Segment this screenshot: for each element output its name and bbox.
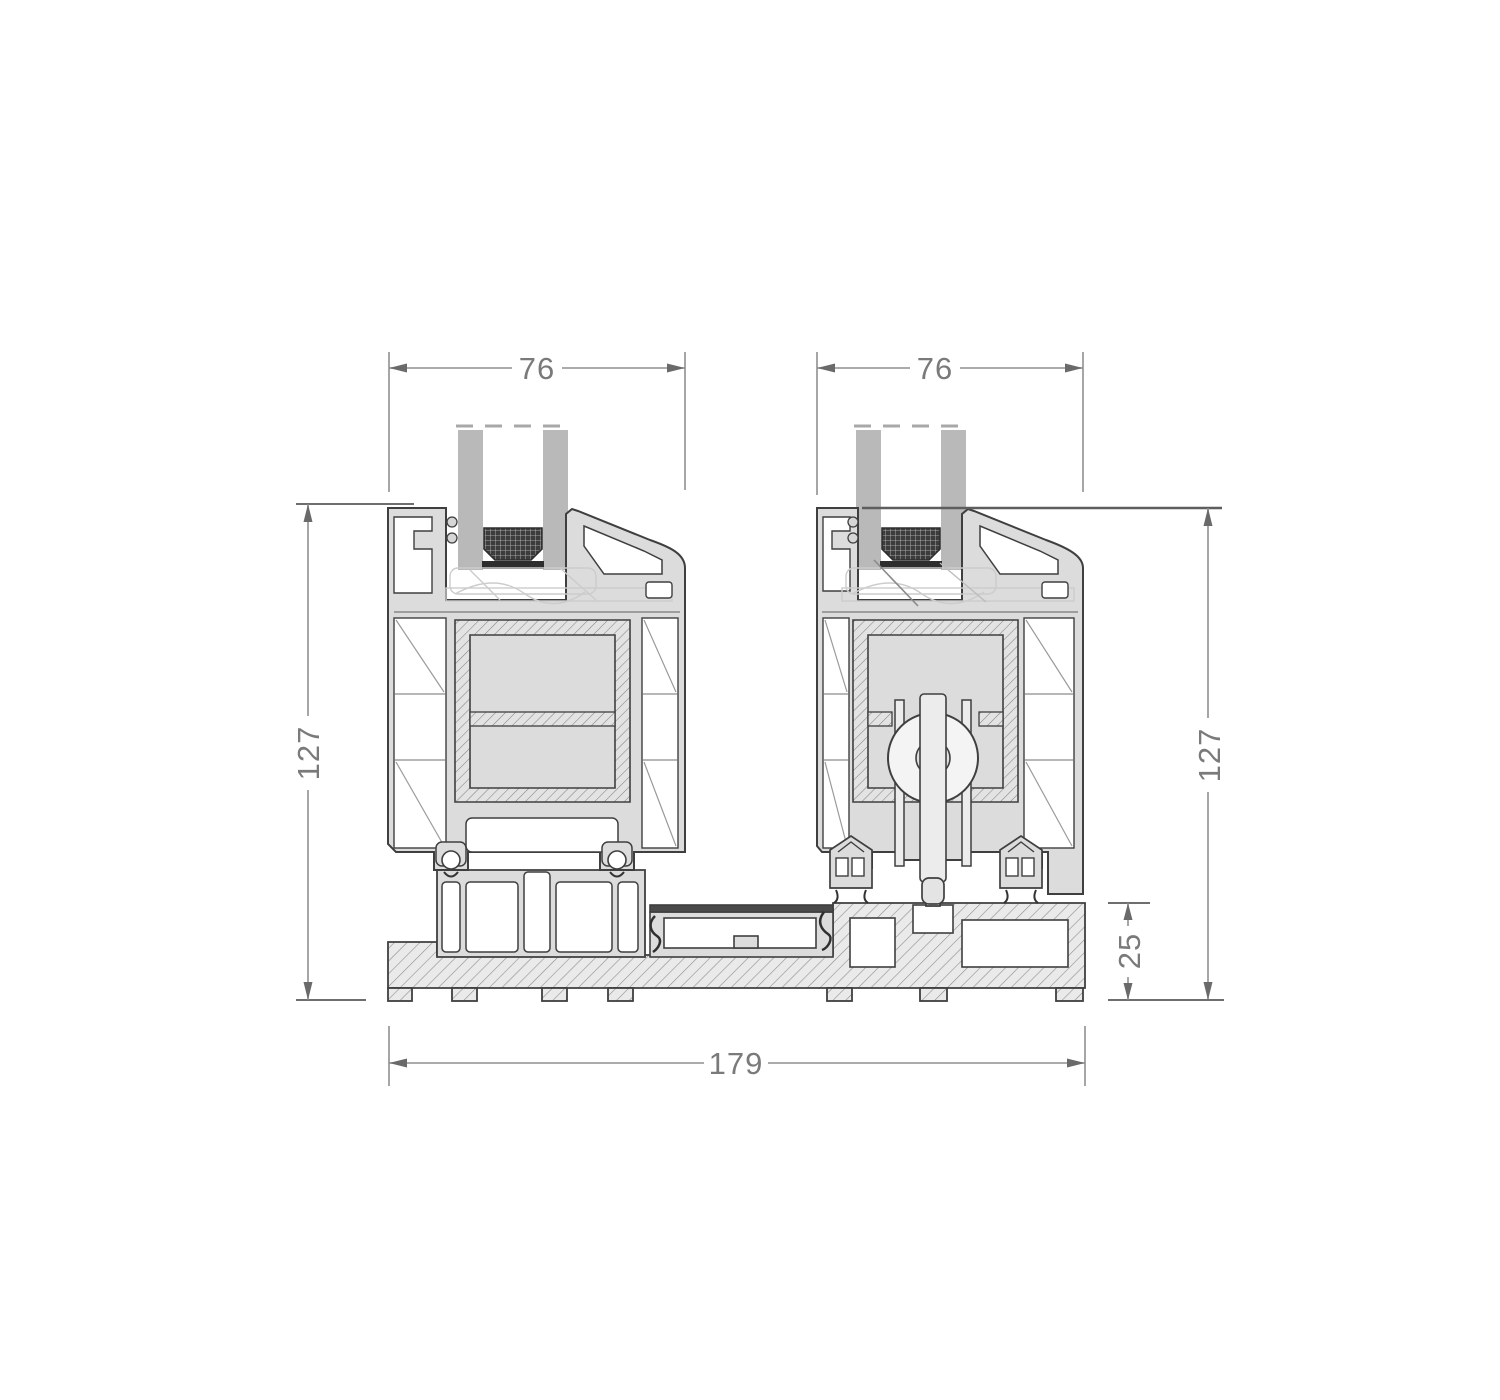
chamber-column xyxy=(642,618,678,848)
dim-label-76-right: 76 xyxy=(917,351,953,386)
glass-spacer xyxy=(484,528,542,560)
roller-foot xyxy=(922,878,944,904)
dim-label-76-left: 76 xyxy=(519,351,555,386)
chamber-column xyxy=(823,618,849,848)
threshold-top-bar xyxy=(650,905,833,912)
roller-assembly xyxy=(888,694,978,904)
glass-pane xyxy=(856,430,881,570)
glass-pane xyxy=(458,430,483,570)
glass-spacer xyxy=(882,528,940,560)
sill-track-notch xyxy=(913,905,953,933)
steel-web xyxy=(470,712,615,726)
sill-cutout xyxy=(962,920,1068,967)
chamber-column xyxy=(394,618,446,848)
seal-bump xyxy=(848,517,858,527)
bead-foot-chamber xyxy=(1042,582,1068,598)
guide-fitting xyxy=(1000,836,1042,903)
drawing-canvas: 76 76 127 127 xyxy=(0,0,1500,1400)
sash-profile-right xyxy=(817,508,1083,904)
dim-label-179: 179 xyxy=(709,1046,764,1081)
seal-bump xyxy=(447,533,457,543)
sill-cutout xyxy=(850,918,895,967)
chamber-column xyxy=(1024,618,1074,848)
dim-label-127-right: 127 xyxy=(1192,728,1227,783)
technical-drawing: 76 76 127 127 xyxy=(0,0,1500,1400)
dimension-76-left: 76 xyxy=(389,351,685,492)
dimension-179: 179 xyxy=(389,1026,1085,1086)
guide-fitting xyxy=(830,836,872,903)
glass-unit-left xyxy=(456,426,570,570)
seal-bump xyxy=(848,533,858,543)
steel-web xyxy=(979,712,1003,726)
bead-foot-chamber xyxy=(646,582,672,598)
sill-feet xyxy=(388,988,1083,1001)
steel-web xyxy=(868,712,892,726)
glass-unit-right xyxy=(854,426,968,570)
subframe-left xyxy=(437,870,645,957)
bottom-chamber xyxy=(466,818,618,852)
glass-pane xyxy=(543,430,568,570)
seal-bump xyxy=(447,517,457,527)
threshold-insert xyxy=(650,905,833,957)
dim-label-127-left: 127 xyxy=(291,726,326,781)
drip-chamber xyxy=(394,517,432,593)
dim-label-25: 25 xyxy=(1112,933,1147,969)
roller-shaft xyxy=(920,694,946,882)
